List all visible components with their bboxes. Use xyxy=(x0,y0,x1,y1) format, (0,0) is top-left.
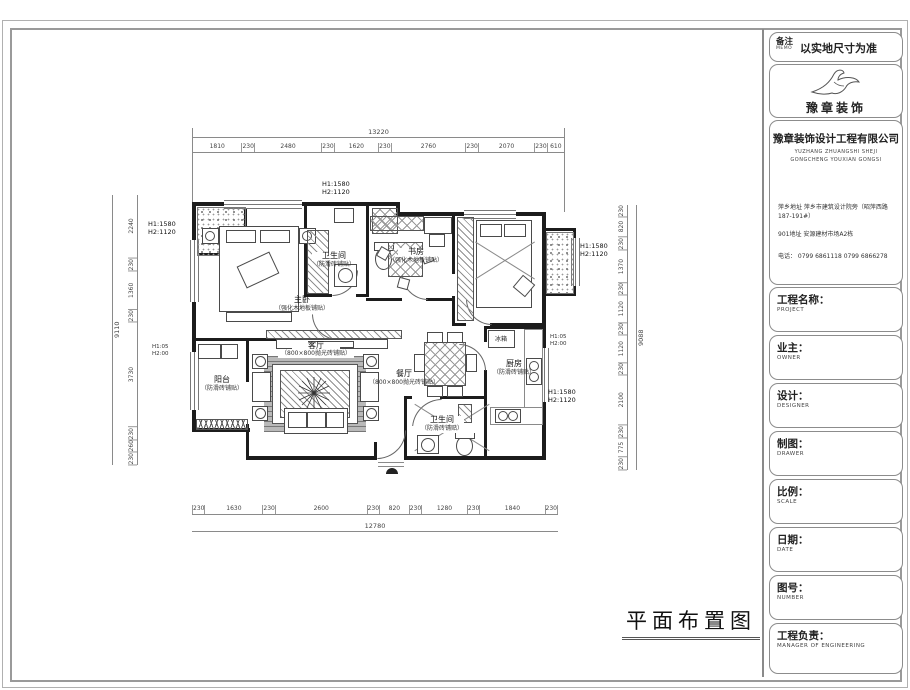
memo-value: 以实地尺寸为准 xyxy=(800,40,877,56)
entry-step xyxy=(378,466,404,467)
dim: 230 xyxy=(128,259,137,271)
entry-step xyxy=(378,462,404,463)
company-en2: GONGCHENG YOUXIAN GONGSI xyxy=(770,157,902,163)
pillow xyxy=(226,230,256,243)
room-label-balcony: 阳台 xyxy=(204,376,240,385)
dim: 230 xyxy=(128,453,137,465)
dim: 1630 xyxy=(204,505,262,514)
desk xyxy=(424,217,452,234)
room-finish-master: （强化木地板铺贴） xyxy=(258,306,346,313)
dim-top-segments: 1810 230 2480 230 1620 230 2760 230 2070… xyxy=(192,143,565,153)
field-owner: 业主： OWNER xyxy=(769,335,903,380)
dim: 230 xyxy=(618,426,627,438)
company-addr2: 901地址 安源建材市场A2栋 xyxy=(778,229,896,238)
dim-bottom-segments: 230 1630 230 2600 230 820 230 1280 230 1… xyxy=(192,505,558,515)
dim: 2100 xyxy=(618,375,627,425)
room-label-bath2: 卫生间 xyxy=(420,416,464,425)
dining-chair xyxy=(427,386,443,397)
folding-window xyxy=(196,419,248,430)
dining-chair xyxy=(447,332,463,343)
dim: 1370 xyxy=(618,250,627,283)
brand-bird-icon xyxy=(810,68,862,98)
field-sub: OWNER xyxy=(777,355,801,361)
washing-machine-drum xyxy=(338,268,353,283)
wall-segment xyxy=(356,294,369,297)
wall-segment xyxy=(246,456,377,460)
room-finish-living: （800×800抛光砖铺贴） xyxy=(278,351,354,358)
window-note: H1:1580 H2:1120 xyxy=(148,220,176,236)
dim: 260 xyxy=(128,440,137,452)
dim: 230 xyxy=(128,310,137,322)
field-number: 图号： NUMBER xyxy=(769,575,903,620)
titleblock-divider xyxy=(762,29,764,677)
room-finish-bath1: （防滑砖铺贴） xyxy=(300,262,368,269)
window-note-small: H1:05 H2:00 xyxy=(550,334,567,347)
lamp xyxy=(205,231,215,241)
dim: 820 xyxy=(379,505,409,514)
company-en1: YUZHANG ZHUANGSHI SHEJI xyxy=(770,149,902,155)
wall-segment xyxy=(366,204,369,296)
window-note: H1:1580 H2:1120 xyxy=(580,242,608,258)
plant xyxy=(366,408,377,419)
field-sub: SCALE xyxy=(777,499,797,505)
dim: 230 xyxy=(618,238,627,250)
room-finish-study: （强化木地板铺贴） xyxy=(382,258,450,265)
dim: 2760 xyxy=(391,143,466,152)
field-sub: MANAGER OF ENGINEERING xyxy=(777,643,865,649)
sink-bowl xyxy=(498,411,508,421)
dim: 2240 xyxy=(128,195,137,259)
doorbell-symbol xyxy=(386,468,398,474)
dim-left-segments: 2240 230 1360 230 3730 230 260 230 xyxy=(128,195,138,465)
field-date: 日期： DATE xyxy=(769,527,903,572)
logo-box: 豫章装饰 xyxy=(769,64,903,118)
dim: 1120 xyxy=(618,296,627,323)
window-note: H1:1580 H2:1120 xyxy=(322,180,350,196)
wall-segment xyxy=(366,298,402,301)
sofa-cushion xyxy=(288,412,307,428)
field-sub: NUMBER xyxy=(777,595,804,601)
window-note-h2: H2:1120 xyxy=(322,188,350,196)
dim-left-total: 9110 xyxy=(112,195,122,465)
dim: 610 xyxy=(547,143,565,152)
field-label: 工程负责： xyxy=(777,628,830,643)
wall-segment xyxy=(404,456,546,460)
sofa-cushion xyxy=(307,412,326,428)
sofa-cushion xyxy=(326,412,344,428)
plant xyxy=(255,408,266,419)
room-finish-bath2: （防滑砖铺贴） xyxy=(408,426,476,433)
field-label: 比例： xyxy=(777,484,809,499)
wall-segment xyxy=(452,212,455,274)
field-label: 设计： xyxy=(777,388,809,403)
dim-right-total: 9088 xyxy=(636,205,646,470)
field-label: 工程名称： xyxy=(777,292,830,307)
field-designer: 设计： DESIGNER xyxy=(769,383,903,428)
field-manager: 工程负责： MANAGER OF ENGINEERING xyxy=(769,623,903,674)
dim: 3730 xyxy=(128,322,137,427)
armchair xyxy=(360,372,379,402)
dim: 2600 xyxy=(275,505,367,514)
room-finish-balcony: （防滑砖铺贴） xyxy=(196,386,248,393)
room-label-master: 主卧 xyxy=(272,296,332,305)
bed-bench xyxy=(226,312,292,322)
closet xyxy=(370,216,424,231)
field-scale: 比例： SCALE xyxy=(769,479,903,524)
window-note-h1: H1:1580 xyxy=(148,220,176,228)
company-phone: 电话： 0799 6861118 0799 6866278 xyxy=(778,251,896,260)
window-note-h1: H1:1580 xyxy=(580,242,608,250)
sink-bowl xyxy=(421,438,435,452)
vanity-sink xyxy=(334,208,354,223)
toilet xyxy=(456,436,473,456)
wall-segment xyxy=(404,396,407,460)
company-name: 豫章装饰设计工程有限公司 xyxy=(770,131,902,146)
field-label: 日期： xyxy=(777,532,809,547)
small-note-h1: H1:05 xyxy=(550,334,567,340)
balcony-cabinet xyxy=(221,344,238,359)
field-sub: DRAWER xyxy=(777,451,804,457)
wall-segment xyxy=(246,338,249,382)
dim: 775 xyxy=(618,438,627,457)
dim: 1620 xyxy=(334,143,378,152)
room-label-dining: 餐厅 xyxy=(386,370,422,379)
dim-right-segments: 230 820 230 1370 230 1120 230 1120 230 2… xyxy=(618,205,628,470)
dim: 230 xyxy=(618,363,627,375)
extension-line xyxy=(192,128,193,202)
room-finish-dining: （800×800抛光砖铺贴） xyxy=(368,380,440,387)
memo-sub: MEMO xyxy=(776,46,792,51)
dim: 230 xyxy=(618,458,627,470)
plant xyxy=(255,356,266,367)
pillow xyxy=(504,224,526,237)
field-label: 图号： xyxy=(777,580,809,595)
field-sub: DATE xyxy=(777,547,793,553)
small-note-h2: H2:00 xyxy=(550,341,567,347)
pillow xyxy=(480,224,502,237)
room-label-bath1: 卫生间 xyxy=(312,252,356,261)
dim: 230 xyxy=(409,505,421,514)
field-drawer: 制图： DRAWER xyxy=(769,431,903,476)
dim: 230 xyxy=(467,505,479,514)
dim: 2480 xyxy=(254,143,321,152)
small-note-h2: H2:00 xyxy=(152,351,169,357)
window xyxy=(190,352,199,410)
small-note-h1: H1:05 xyxy=(152,344,169,350)
wardrobe xyxy=(457,217,474,321)
memo-box: 备注 MEMO 以实地尺寸为准 xyxy=(769,32,903,62)
dining-chair xyxy=(427,332,443,343)
plant xyxy=(366,356,377,367)
wall-segment xyxy=(452,323,466,326)
dim: 230 xyxy=(545,505,558,514)
floor-plan-sheet: 备注 MEMO 以实地尺寸为准 豫章装饰 豫章装饰设计工程有限公司 YUZHAN… xyxy=(0,0,910,690)
wall-segment xyxy=(542,228,576,231)
dining-chair xyxy=(466,354,477,372)
company-box: 豫章装饰设计工程有限公司 YUZHANG ZHUANGSHI SHEJI GON… xyxy=(769,120,903,285)
dim: 1120 xyxy=(618,336,627,363)
balcony-floor xyxy=(546,232,574,294)
extension-line xyxy=(564,128,565,212)
dim: 1810 xyxy=(192,143,241,152)
dim-top-total: 13220 xyxy=(192,128,565,138)
armchair xyxy=(252,372,271,402)
dim: 2070 xyxy=(478,143,534,152)
dim: 1360 xyxy=(128,271,137,310)
field-sub: PROJECT xyxy=(777,307,804,313)
dim: 230 xyxy=(241,143,253,152)
starburst xyxy=(297,376,331,410)
dim: 230 xyxy=(378,143,390,152)
window-note-small: H1:05 H2:00 xyxy=(152,344,169,357)
dim: 230 xyxy=(192,505,204,514)
dim: 230 xyxy=(618,323,627,335)
dim: 230 xyxy=(534,143,546,152)
dim-bottom-total: 12780 xyxy=(192,522,558,532)
fridge-label: 冰箱 xyxy=(491,334,511,343)
window-note-h2: H2:1120 xyxy=(148,228,176,236)
wall-segment xyxy=(426,298,455,301)
pillow xyxy=(260,230,290,243)
dim: 230 xyxy=(367,505,379,514)
dim: 230 xyxy=(618,205,627,217)
dim: 1280 xyxy=(421,505,467,514)
dim: 230 xyxy=(128,428,137,440)
sink-bowl xyxy=(508,411,518,421)
brand-name: 豫章装饰 xyxy=(770,99,902,116)
window-note: H1:1580 H2:1120 xyxy=(548,388,576,404)
window-note-h1: H1:1580 xyxy=(322,180,350,188)
field-project: 工程名称： PROJECT xyxy=(769,287,903,332)
window-note-h2: H2:1120 xyxy=(548,396,576,404)
drawing-title: 平面布置图 xyxy=(622,605,760,640)
dim: 230 xyxy=(262,505,274,514)
tv-backdrop xyxy=(266,330,402,339)
room-finish-kitchen: （防滑砖铺贴） xyxy=(486,370,542,377)
dim: 1840 xyxy=(479,505,544,514)
field-label: 制图： xyxy=(777,436,809,451)
dim: 820 xyxy=(618,217,627,237)
field-sub: DESIGNER xyxy=(777,403,810,409)
desk-chair xyxy=(429,234,445,247)
window-note-h2: H2:1120 xyxy=(580,250,608,258)
balcony-cabinet xyxy=(198,344,221,359)
dim: 230 xyxy=(321,143,333,152)
field-label: 业主： xyxy=(777,340,809,355)
room-label-kitchen: 厨房 xyxy=(496,360,532,369)
window-note-h1: H1:1580 xyxy=(548,388,576,396)
dim: 230 xyxy=(618,283,627,295)
dining-chair xyxy=(447,386,463,397)
company-addr1: 萍乡地址 萍乡市建筑设计院旁（昭萍西路187-191#） xyxy=(778,203,896,221)
room-label-study: 书房 xyxy=(398,248,434,257)
dim: 230 xyxy=(465,143,477,152)
